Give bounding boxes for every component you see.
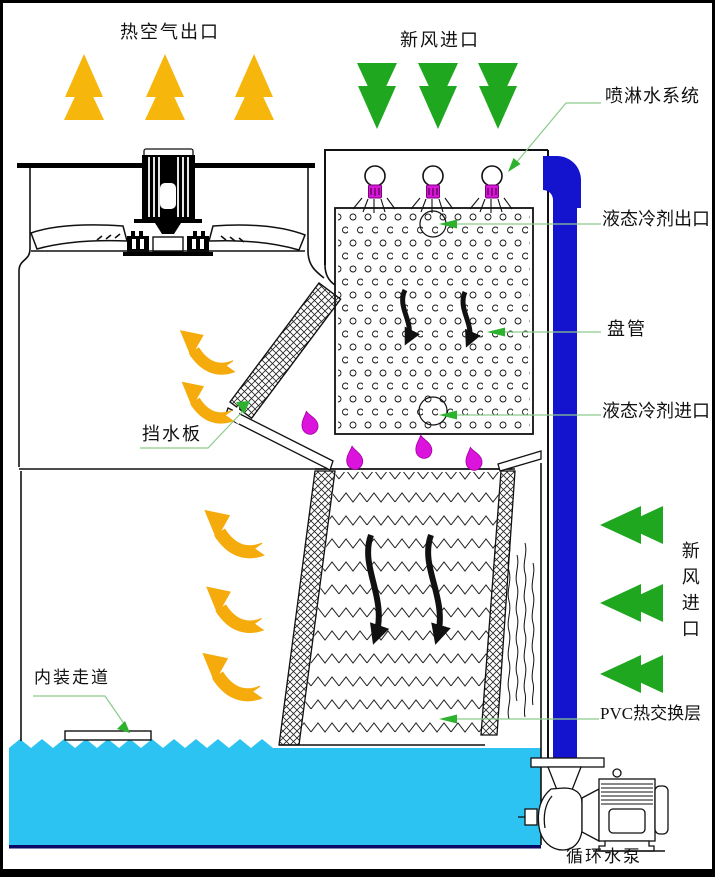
air-swoosh-arrows-upper	[180, 330, 241, 424]
label-refrigerant-inlet: 液态冷剂进口	[602, 402, 710, 422]
label-water-baffle: 挡水板	[142, 425, 202, 445]
label-coil: 盘管	[607, 320, 647, 340]
pump-volute	[538, 788, 582, 850]
label-spray-water-system: 喷淋水系统	[605, 87, 700, 107]
label-circulating-pump: 循环水泵	[566, 848, 642, 867]
label-fresh-air-inlet-right: 新风进口	[679, 541, 699, 645]
hot-air-arrows	[64, 54, 274, 120]
label-hot-air-outlet: 热空气出口	[120, 23, 220, 43]
drain-plate	[225, 408, 333, 470]
label-refrigerant-outlet: 液态冷剂出口	[602, 210, 710, 230]
diagram-canvas	[3, 3, 712, 869]
coil-section	[325, 150, 548, 434]
water-streams	[508, 541, 534, 719]
cooling-tower-diagram: 热空气出口 新风进口 喷淋水系统 液态冷剂出口 盘管 液态冷剂进口 挡水板 新风…	[0, 0, 715, 877]
spray-nozzles	[353, 166, 512, 213]
air-swoosh-arrows-lower	[202, 510, 270, 702]
label-fresh-air-inlet-top: 新风进口	[400, 31, 480, 51]
pvc-fill	[279, 451, 541, 745]
leader-walkway	[33, 696, 127, 728]
water-baffle-plate	[230, 283, 341, 418]
fresh-air-right-arrows	[600, 506, 663, 693]
label-internal-walkway: 内装走道	[34, 669, 110, 688]
fill-support-bracket	[498, 451, 541, 471]
walkway-platform	[65, 731, 151, 740]
label-pvc-heat-exchange-layer: PVC热交换层	[600, 705, 701, 724]
fan-hub	[123, 231, 213, 256]
fresh-air-top-arrows	[357, 63, 518, 129]
water-basin	[9, 739, 541, 849]
coil-tubes-pattern	[338, 211, 530, 431]
drift-eliminator	[225, 283, 341, 470]
pump-flange	[531, 758, 604, 767]
